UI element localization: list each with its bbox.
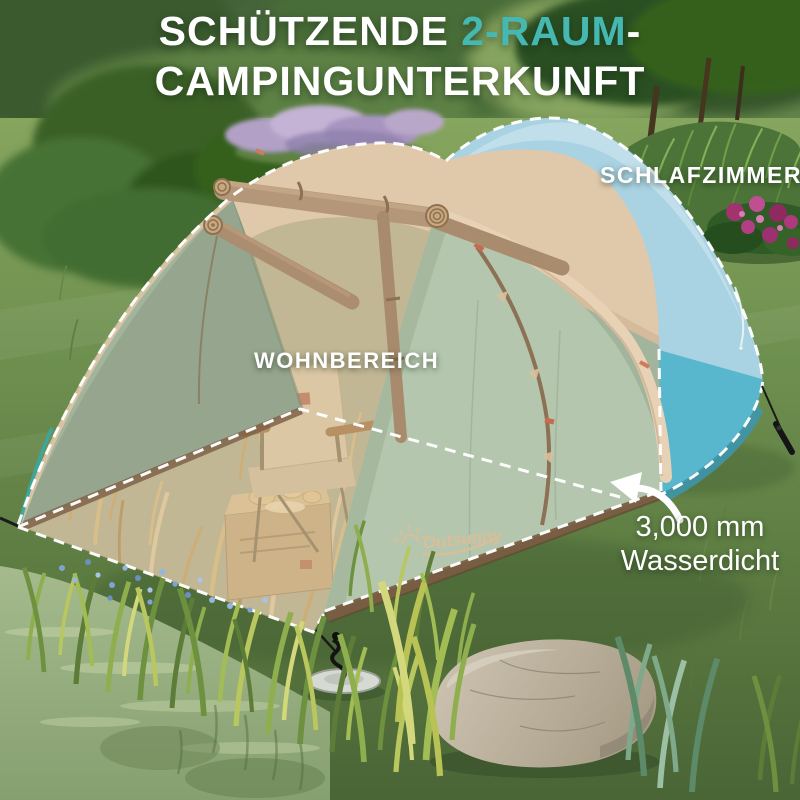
headline-line1: SCHÜTZENDE 2-RAUM- xyxy=(0,6,800,56)
waterproof-value: 3,000 mm xyxy=(600,511,800,545)
product-marketing-image: Outsunny xyxy=(0,0,800,800)
headline: SCHÜTZENDE 2-RAUM- CAMPINGUNTERKUNFT xyxy=(0,6,800,106)
headline-accent: 2-RAUM xyxy=(461,8,626,54)
bedroom-label: SCHLAFZIMMER xyxy=(600,162,800,189)
beam-end-cap xyxy=(214,179,230,195)
headline-part2: - xyxy=(627,8,642,54)
waterproof-callout: 3,000 mm Wasserdicht xyxy=(600,511,800,579)
headline-line2: CAMPINGUNTERKUNFT xyxy=(0,56,800,106)
beam-end-cap xyxy=(426,205,448,227)
headline-part1: SCHÜTZENDE xyxy=(159,8,462,54)
living-area-label: WOHNBEREICH xyxy=(254,348,439,374)
scene-illustration: Outsunny xyxy=(0,0,800,800)
waterproof-text: Wasserdicht xyxy=(600,545,800,579)
